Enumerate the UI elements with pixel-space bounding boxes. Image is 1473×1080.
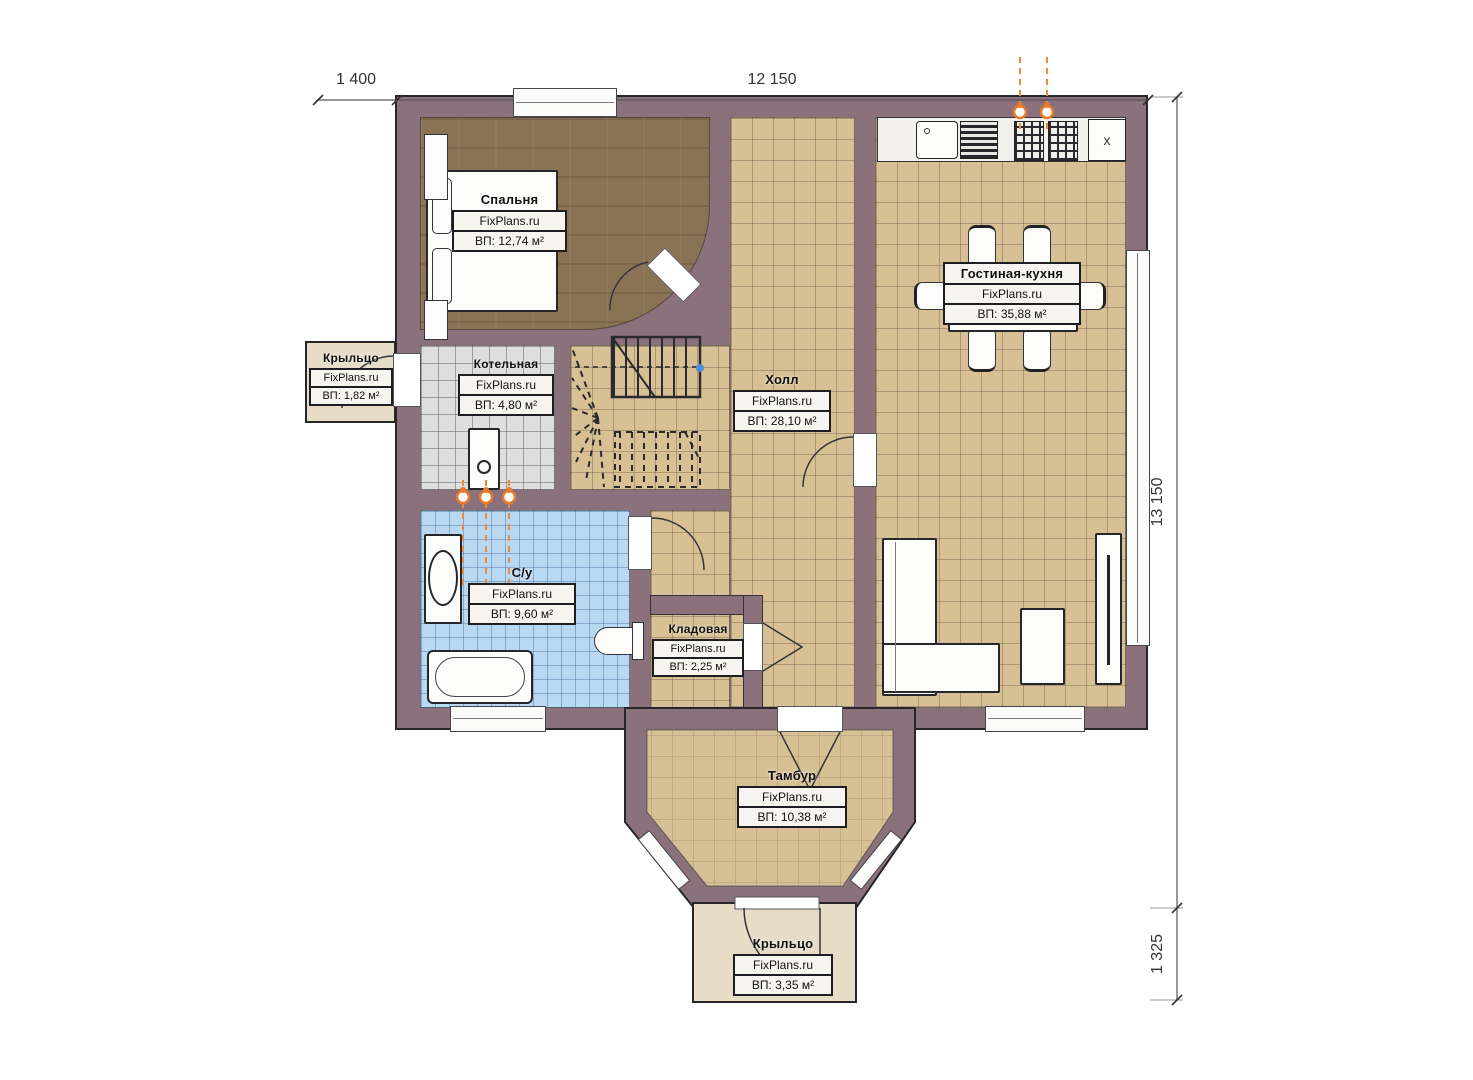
plan-overlay: 1 400 12 150 13 150 1 325 [0, 0, 1473, 1080]
room-area: ВП: 35,88 м² [945, 303, 1079, 323]
room-label-vestibule: Тамбур FixPlans.ru ВП: 10,38 м² [737, 768, 847, 828]
staircase [572, 337, 704, 487]
room-name: Котельная [458, 357, 554, 371]
room-area: ВП: 4,80 м² [460, 394, 552, 414]
room-brand: FixPlans.ru [454, 212, 565, 230]
room-info-box: FixPlans.ru ВП: 4,80 м² [458, 374, 554, 416]
room-label-boiler: Котельная FixPlans.ru ВП: 4,80 м² [458, 357, 554, 416]
door-opening-hall-living [853, 433, 877, 487]
room-label-bedroom: Спальня FixPlans.ru ВП: 12,74 м² [452, 192, 567, 252]
door-opening-storage [743, 623, 763, 671]
room-name: Тамбур [737, 768, 847, 783]
room-area: ВП: 28,10 м² [735, 410, 829, 430]
dim-top-porch: 1 400 [336, 71, 376, 88]
room-brand: FixPlans.ru [311, 370, 391, 386]
window-bathroom-bottom-frame [453, 718, 543, 719]
room-label-porch-left: Крыльцо FixPlans.ru ВП: 1,82 м² [309, 351, 393, 406]
dim-top-main: 12 150 [748, 71, 797, 88]
room-brand: FixPlans.ru [654, 641, 742, 657]
room-label-storage: Кладовая FixPlans.ru ВП: 2,25 м² [652, 622, 744, 677]
floor-plan: 1 400 12 150 13 150 1 325 x [0, 0, 1473, 1080]
room-info-box: FixPlans.ru ВП: 3,35 м² [733, 954, 833, 996]
room-info-box: FixPlans.ru ВП: 28,10 м² [733, 390, 831, 432]
window-living-bottom-frame [988, 718, 1082, 719]
window-bedroom-top-frame [516, 102, 614, 103]
window-living-right [1126, 250, 1150, 646]
window-living-bottom [985, 706, 1085, 732]
room-area: ВП: 3,35 м² [735, 974, 831, 994]
room-area: ВП: 10,38 м² [739, 806, 845, 826]
room-name: Спальня [452, 192, 567, 207]
dim-right-main: 13 150 [1149, 477, 1166, 526]
room-label-living-kitchen: Гостиная-кухня FixPlans.ru ВП: 35,88 м² [943, 262, 1081, 325]
room-brand: FixPlans.ru [470, 585, 574, 603]
room-name: С/у [468, 565, 576, 580]
room-area: ВП: 1,82 м² [311, 386, 391, 404]
window-living-right-frame [1137, 253, 1138, 643]
room-area: ВП: 9,60 м² [470, 603, 574, 623]
room-brand: FixPlans.ru [735, 956, 831, 974]
room-info-box: FixPlans.ru ВП: 1,82 м² [309, 368, 393, 406]
room-info-box: FixPlans.ru ВП: 10,38 м² [737, 786, 847, 828]
room-name: Холл [733, 372, 831, 387]
room-brand: FixPlans.ru [460, 376, 552, 394]
room-label-porch-bottom: Крыльцо FixPlans.ru ВП: 3,35 м² [733, 936, 833, 996]
door-opening-vestibule [777, 706, 843, 732]
room-area: ВП: 2,25 м² [654, 657, 742, 675]
room-name: Гостиная-кухня [943, 262, 1081, 283]
room-brand: FixPlans.ru [945, 285, 1079, 303]
room-info-box: FixPlans.ru ВП: 12,74 м² [452, 210, 567, 252]
room-brand: FixPlans.ru [735, 392, 829, 410]
room-area: ВП: 12,74 м² [454, 230, 565, 250]
door-opening-porch-left [393, 353, 421, 407]
room-name: Кладовая [652, 622, 744, 636]
door-opening-bathroom [628, 516, 652, 570]
room-info-box: FixPlans.ru ВП: 9,60 м² [468, 583, 576, 625]
room-label-hall: Холл FixPlans.ru ВП: 28,10 м² [733, 372, 831, 432]
room-info-box: FixPlans.ru ВП: 35,88 м² [943, 283, 1081, 325]
dim-right-porch: 1 325 [1149, 934, 1166, 974]
room-name: Крыльцо [309, 351, 393, 365]
room-brand: FixPlans.ru [739, 788, 845, 806]
room-label-bathroom: С/у FixPlans.ru ВП: 9,60 м² [468, 565, 576, 625]
room-name: Крыльцо [733, 936, 833, 951]
room-info-box: FixPlans.ru ВП: 2,25 м² [652, 639, 744, 677]
window-bathroom-bottom [450, 706, 546, 732]
